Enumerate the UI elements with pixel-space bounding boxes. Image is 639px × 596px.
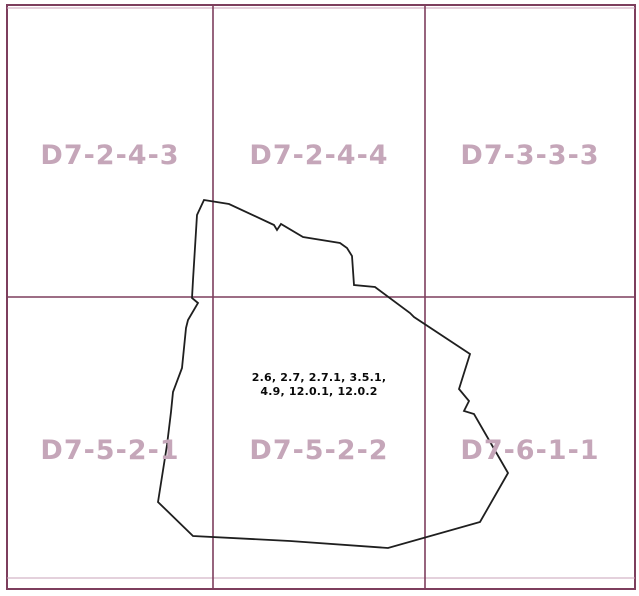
grid-cell-label-d7-6-1-1: D7-6-1-1 — [425, 433, 635, 469]
grid-cell-label-d7-2-4-3: D7-2-4-3 — [7, 138, 213, 174]
polygon-annotation-line-1: 2.6, 2.7, 2.7.1, 3.5.1, — [213, 371, 425, 385]
polygon-annotation-line-2: 4.9, 12.0.1, 12.0.2 — [213, 385, 425, 399]
grid-cell-label-d7-3-3-3: D7-3-3-3 — [425, 138, 635, 174]
grid-cell-label-d7-5-2-1: D7-5-2-1 — [7, 433, 213, 469]
grid-cell-label-d7-5-2-2: D7-5-2-2 — [213, 433, 425, 469]
map-grid-overlay — [0, 0, 639, 596]
polygon-annotation: 2.6, 2.7, 2.7.1, 3.5.1, 4.9, 12.0.1, 12.… — [213, 371, 425, 398]
map-canvas: D7-2-4-3 D7-2-4-4 D7-3-3-3 D7-5-2-1 D7-5… — [0, 0, 639, 596]
grid-cell-label-d7-2-4-4: D7-2-4-4 — [213, 138, 425, 174]
